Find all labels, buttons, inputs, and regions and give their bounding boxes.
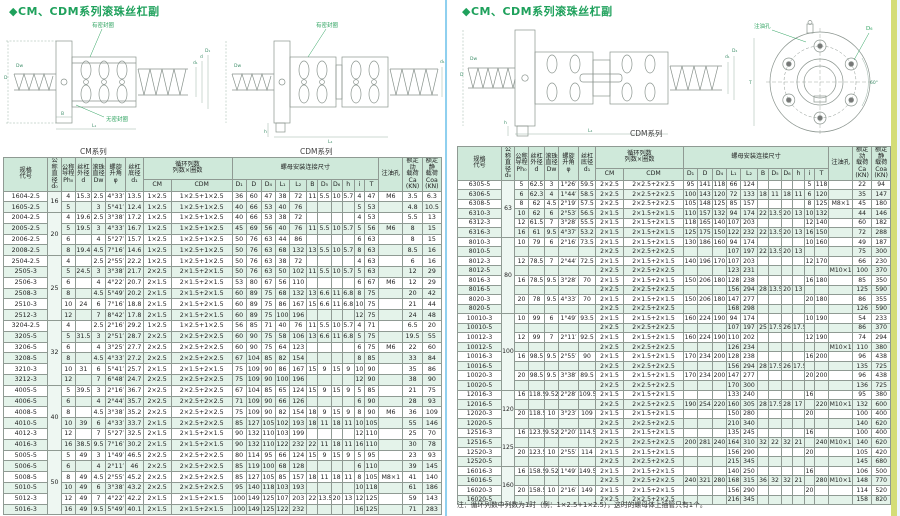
spec-value-cell: 78.5 <box>529 275 545 285</box>
spec-value-cell: 75 <box>232 364 246 375</box>
spec-value-cell: 200 <box>713 352 727 362</box>
spec-row: 4010-5103964°33′33.72×1.52×2.5+2×2.58512… <box>4 418 442 429</box>
spec-value-cell <box>815 428 829 438</box>
spec-value-cell <box>758 342 769 352</box>
spec-value-cell: 4 <box>354 256 364 267</box>
spec-value-cell <box>829 380 853 390</box>
spec-value-cell <box>75 461 91 472</box>
spec-value-cell: 53 <box>261 213 275 224</box>
dim-dw: Dw <box>234 63 241 69</box>
spec-value-cell: 15 <box>422 234 441 245</box>
spec-value-cell: 114.5 <box>579 428 596 438</box>
spec-value-cell: 4 <box>91 277 105 288</box>
spec-value-cell: 20 <box>805 409 815 419</box>
spec-value-cell <box>342 504 354 515</box>
spec-value-cell: 90 <box>261 396 275 407</box>
spec-value-cell: 135 <box>853 361 872 371</box>
spec-value-cell: 85 <box>261 385 275 396</box>
spec-value-cell: 150 <box>684 295 698 305</box>
spec-value-cell: 106 <box>290 331 307 342</box>
spec-value-cell: 95 <box>853 390 872 400</box>
spec-value-cell: 7 <box>545 333 559 343</box>
spec-value-cell: 48 <box>422 310 441 321</box>
spec-row: 8010-380107962°16′73.52×1.52×1.5+2×1.513… <box>458 237 891 247</box>
spec-value-cell: 2×1.5+2×1.5 <box>624 466 684 476</box>
spec-value-cell <box>805 342 815 352</box>
spec-value-cell: 58.5 <box>579 190 596 200</box>
spec-value-cell: 5 <box>61 385 75 396</box>
spec-value-cell <box>545 457 559 467</box>
spec-value-cell: 124 <box>290 450 307 461</box>
spec-value-cell: 32 <box>782 438 793 448</box>
spec-value-cell: 64 <box>275 342 289 353</box>
spec-value-cell: 73.5 <box>579 237 596 247</box>
spec-value-cell: 15.7 <box>126 234 143 245</box>
spec-value-cell <box>331 396 342 407</box>
spec-value-cell <box>75 407 91 418</box>
spec-value-cell: 86 <box>275 364 289 375</box>
spec-row: 12016-312016118.59.5252°28′109.52×1.52×1… <box>458 390 891 400</box>
spec-value-cell <box>805 476 815 486</box>
spec-value-cell: 18 <box>331 418 342 429</box>
spec-value-cell: 11 <box>318 418 331 429</box>
spec-value-cell: 40 <box>232 213 246 224</box>
spec-value-cell <box>815 447 829 457</box>
spec-value-cell <box>379 321 403 332</box>
spec-value-cell: 8 <box>61 353 75 364</box>
spec-code-cell: 8012-5 <box>458 266 502 276</box>
spec-value-cell <box>769 304 782 314</box>
spec-value-cell: 66 <box>727 180 741 190</box>
spec-value-cell <box>379 493 403 504</box>
spec-value-cell: 59.5 <box>579 180 596 190</box>
spec-value-cell: 20 <box>331 493 342 504</box>
spec-value-cell <box>342 353 354 364</box>
spec-value-cell <box>545 400 559 410</box>
spec-code-cell: 12516-3 <box>458 428 502 438</box>
spec-value-cell <box>793 409 805 419</box>
spec-value-cell <box>515 380 529 390</box>
spec-value-cell: 8 <box>61 245 75 256</box>
spec-value-cell: 2×2.5 <box>596 457 624 467</box>
spec-value-cell: 2°44′ <box>559 256 579 266</box>
spec-value-cell: 15 <box>331 364 342 375</box>
spec-value-cell: 9 <box>318 364 331 375</box>
spec-value-cell: 132 <box>713 209 727 219</box>
spec-value-cell: 200 <box>713 371 727 381</box>
spec-value-cell: 55 <box>403 418 422 429</box>
spec-value-cell <box>318 234 331 245</box>
spec-value-cell <box>684 304 698 314</box>
spec-value-cell <box>379 234 403 245</box>
spec-value-cell: 6 <box>61 342 75 353</box>
spec-value-cell: 125 <box>261 493 275 504</box>
spec-value-cell: 8 <box>403 234 422 245</box>
spec-value-cell: 13.5 <box>318 493 331 504</box>
spec-value-cell <box>782 180 793 190</box>
spec-value-cell <box>782 333 793 343</box>
spec-value-cell <box>559 304 579 314</box>
spec-value-cell: 53 <box>364 213 378 224</box>
spec-value-cell <box>782 352 793 362</box>
spec-value-cell <box>342 213 354 224</box>
spec-value-cell <box>579 342 596 352</box>
spec-value-cell: 66 <box>275 396 289 407</box>
spec-value-cell: 93.5 <box>579 314 596 324</box>
spec-value-cell: 24.5 <box>75 267 91 278</box>
spec-value-cell: 10 <box>515 237 529 247</box>
spec-value-cell: 11 <box>342 472 354 483</box>
spec-value-cell: 154 <box>290 407 307 418</box>
spec-value-cell: 50 <box>275 267 289 278</box>
spec-value-cell <box>307 277 318 288</box>
spec-value-cell: 33.7 <box>126 418 143 429</box>
spec-value-cell: 2×1.5 <box>596 486 624 496</box>
spec-value-cell: 232 <box>290 439 307 450</box>
spec-value-cell: 95 <box>261 450 275 461</box>
spec-value-cell: 345 <box>741 457 758 467</box>
spec-code-cell: 4006-5 <box>4 396 48 407</box>
nominal-diameter-cell: 25 <box>48 256 61 321</box>
spec-value-cell <box>829 323 853 333</box>
spec-value-cell: 2×2.5+2×2.5 <box>171 331 232 342</box>
spec-value-cell: 100 <box>232 504 246 515</box>
spec-value-cell: 17 <box>793 400 805 410</box>
spec-value-cell <box>805 495 815 505</box>
spec-value-cell: 199 <box>290 429 307 440</box>
spec-value-cell <box>331 504 342 515</box>
spec-value-cell: 2°20′ <box>559 428 579 438</box>
spec-value-cell: 186 <box>422 483 441 494</box>
spec-value-cell <box>758 218 769 228</box>
spec-code-cell: 12016-3 <box>458 390 502 400</box>
spec-value-cell <box>758 447 769 457</box>
spec-value-cell: 15 <box>307 364 318 375</box>
spec-value-cell: 9.5 <box>91 439 105 450</box>
spec-value-cell: 2×1.5+2×1.5 <box>624 428 684 438</box>
spec-value-cell: 7°16′ <box>106 245 126 256</box>
spec-value-cell: 13 <box>793 247 805 257</box>
spec-value-cell: 1×2.5+1×2.5 <box>171 191 232 202</box>
spec-value-cell: 2×1.5+2×1.5 <box>624 218 684 228</box>
spec-code-cell: 2005-2.5 <box>4 223 48 234</box>
spec-value-cell <box>515 361 529 371</box>
spec-value-cell <box>829 275 853 285</box>
spec-code-cell: 8020-3 <box>458 295 502 305</box>
spec-value-cell: 90 <box>261 375 275 386</box>
spec-value-cell <box>318 461 331 472</box>
cdm-series-drawing: 有密封圈 Dw h L₄ d₁ <box>224 17 448 145</box>
spec-value-cell: 63 <box>364 267 378 278</box>
oil-hole-label: 注油孔 <box>754 22 771 30</box>
spec-value-cell: 2×1.5+2×1.5 <box>171 288 232 299</box>
spec-value-cell: 820 <box>872 495 891 505</box>
spec-value-cell <box>793 495 805 505</box>
spec-value-cell: 16 <box>515 466 529 476</box>
spec-value-cell <box>713 361 727 371</box>
spec-value-cell <box>342 483 354 494</box>
spec-value-cell <box>559 476 579 486</box>
spec-value-cell: 232 <box>741 228 758 238</box>
spec-value-cell: 60 <box>232 310 246 321</box>
spec-value-cell <box>698 323 713 333</box>
spec-code-cell: 3204-2.5 <box>4 321 48 332</box>
spec-row: 10016-52×2.52×2.5+2×2.51562942817.52617.… <box>458 361 891 371</box>
spec-value-cell: 350 <box>872 275 891 285</box>
spec-value-cell: 2°55′ <box>106 472 126 483</box>
spec-value-cell: 90 <box>579 352 596 362</box>
cdm-screw-assembly <box>232 41 438 132</box>
spec-value-cell: 9 <box>342 385 354 396</box>
spec-value-cell: 141 <box>698 180 713 190</box>
spec-value-cell <box>769 428 782 438</box>
left-spec-table: 规格 代号公称 直径 d₀公称 导程 Ph₀丝杠 外径 d滚珠 直径 Dw螺旋 … <box>3 157 442 515</box>
spec-value-cell: 2°16′ <box>106 385 126 396</box>
dim-D: D <box>4 75 8 81</box>
spec-value-cell: 6°48′ <box>106 375 126 386</box>
spec-value-cell: 38 <box>403 375 422 386</box>
spec-value-cell: 75 <box>261 310 275 321</box>
spec-value-cell: 21 <box>403 299 422 310</box>
nominal-diameter-cell: 100 <box>502 314 515 390</box>
cdm-annotations: 有密封圈 Dw h L₄ d₁ <box>234 21 445 145</box>
spec-value-cell: 6.6 <box>318 288 331 299</box>
spec-value-cell <box>579 247 596 257</box>
spec-value-cell: 149 <box>579 486 596 496</box>
spec-value-cell: 63 <box>364 245 378 256</box>
spec-value-cell <box>529 419 545 429</box>
spec-value-cell: 238 <box>741 275 758 285</box>
spec-value-cell <box>829 447 853 457</box>
spec-value-cell: 165 <box>698 218 713 228</box>
spec-value-cell: 5°27′ <box>106 234 126 245</box>
spec-value-cell <box>713 466 727 476</box>
spec-value-cell: 62 <box>529 199 545 209</box>
spec-value-cell: 7 <box>91 429 105 440</box>
spec-value-cell: 206 <box>698 295 713 305</box>
spec-value-cell: 75 <box>261 288 275 299</box>
spec-value-cell: 2×2.5+2×2.5 <box>171 483 232 494</box>
spec-row: 5008-58494.52°55′45.22×2.52×2.5+2×2.5851… <box>4 472 442 483</box>
spec-value-cell <box>515 419 529 429</box>
spec-value-cell: 28 <box>758 361 769 371</box>
spec-value-cell: 90 <box>246 342 261 353</box>
spec-value-cell: 28 <box>758 400 769 410</box>
spec-value-cell: 2×1.5+2×1.5 <box>624 371 684 381</box>
spec-value-cell: 86 <box>290 234 307 245</box>
spec-value-cell: 95 <box>364 450 378 461</box>
spec-row: 8012-31278.572°44′72.52×1.52×1.5+2×1.514… <box>458 256 891 266</box>
spec-value-cell <box>698 409 713 419</box>
spec-value-cell: 86 <box>853 295 872 305</box>
spec-value-cell: 380 <box>872 342 891 352</box>
spec-value-cell: 46 <box>126 461 143 472</box>
spec-value-cell <box>307 310 318 321</box>
spec-value-cell <box>829 409 853 419</box>
spec-value-cell: 50 <box>232 267 246 278</box>
spec-value-cell: 8 <box>354 353 364 364</box>
spec-value-cell: 2×2.5 <box>596 419 624 429</box>
spec-value-cell: 2°28′ <box>559 390 579 400</box>
spec-value-cell <box>307 342 318 353</box>
spec-value-cell: 125 <box>364 493 378 504</box>
spec-value-cell: 4°33′ <box>106 191 126 202</box>
spec-value-cell: 5.5 <box>318 223 331 234</box>
spec-value-cell: 16 <box>805 466 815 476</box>
spec-code-cell: 2505-3 <box>4 267 48 278</box>
spec-value-cell: 315 <box>741 476 758 486</box>
spec-value-cell: 19.4 <box>75 245 91 256</box>
spec-value-cell <box>379 202 403 213</box>
spec-value-cell <box>515 438 529 448</box>
spec-value-cell: 76 <box>290 223 307 234</box>
spec-value-cell: 11 <box>793 190 805 200</box>
spec-value-cell: 75 <box>261 331 275 342</box>
spec-value-cell: 66 <box>853 256 872 266</box>
spec-value-cell <box>769 295 782 305</box>
spec-code-cell: 2510-3 <box>4 299 48 310</box>
spec-value-cell <box>579 476 596 486</box>
spec-value-cell: 200 <box>815 371 829 381</box>
spec-row: 12516-52×2.52×2.5+2×2.520028124016431032… <box>458 438 891 448</box>
spec-value-cell: 9.525 <box>545 466 559 476</box>
spec-value-cell: 2×1.5+2×1.5 <box>624 228 684 238</box>
spec-value-cell <box>379 310 403 321</box>
spec-value-cell <box>75 288 91 299</box>
spec-row: 10020-52×2.52×2.5+2×2.5170300136725 <box>458 380 891 390</box>
spec-value-cell: 14.6 <box>126 245 143 256</box>
spec-value-cell: 168 <box>727 476 741 486</box>
spec-value-cell <box>698 419 713 429</box>
spec-value-cell: 24 <box>403 310 422 321</box>
spec-value-cell <box>713 409 727 419</box>
spec-value-cell: 15 <box>307 450 318 461</box>
spec-value-cell: 125 <box>713 199 727 209</box>
spec-value-cell: 25 <box>758 323 769 333</box>
spec-row: 4012-31275°27′32.52×1.52×1.5+2×1.5901321… <box>4 429 442 440</box>
spec-value-cell: 40 <box>275 202 289 213</box>
cdm-series-caption: CDM系列 <box>300 146 332 157</box>
spec-value-cell <box>829 295 853 305</box>
spec-value-cell: 78 <box>529 295 545 305</box>
spec-value-cell: 12 <box>354 493 364 504</box>
spec-value-cell <box>307 461 318 472</box>
spec-value-cell: 2×1.5+2×1.5 <box>624 390 684 400</box>
spec-value-cell: 5°49′ <box>106 288 126 299</box>
angle-label: 60° <box>870 80 878 86</box>
spec-value-cell: 22 <box>853 180 872 190</box>
spec-value-cell: 231 <box>741 266 758 276</box>
spec-row: 10012-3129972°11′92.52×1.52×1.5+2×1.5160… <box>458 333 891 343</box>
spec-value-cell: 294 <box>741 361 758 371</box>
spec-value-cell: 143 <box>698 190 713 200</box>
spec-row: 3208-584.54°33′27.22×2.52×2.5+2×2.567104… <box>4 353 442 364</box>
spec-value-cell: 89 <box>246 310 261 321</box>
right-page: ◆CM、CDM系列滚珠丝杠副 Dw D h <box>448 0 894 516</box>
spec-value-cell: 45 <box>232 223 246 234</box>
spec-value-cell: M10×1 <box>829 400 853 410</box>
spec-row: 3212-31276°48′24.72×2.52×2.5+2×2.5751099… <box>4 375 442 386</box>
spec-code-cell: 2006-2.5 <box>4 234 48 245</box>
spec-value-cell <box>758 180 769 190</box>
spec-value-cell: 288 <box>872 228 891 238</box>
spec-value-cell: 5 <box>61 223 75 234</box>
spec-value-cell <box>769 466 782 476</box>
spec-value-cell: 89 <box>246 299 261 310</box>
spec-value-cell <box>331 202 342 213</box>
spec-value-cell: 71 <box>261 321 275 332</box>
spec-value-cell: 44 <box>422 299 441 310</box>
spec-value-cell: 99 <box>529 314 545 324</box>
spec-value-cell <box>559 419 579 429</box>
spec-value-cell: 53.2 <box>579 228 596 238</box>
spec-value-cell <box>713 380 727 390</box>
spec-value-cell <box>793 218 805 228</box>
spec-value-cell: 18.8 <box>126 299 143 310</box>
spec-value-cell: 110 <box>261 439 275 450</box>
spec-value-cell: 70 <box>422 429 441 440</box>
spec-value-cell: 105 <box>364 472 378 483</box>
spec-row: 2004-2.520419.62.53°38′17.21×2.51×2.5+1×… <box>4 213 442 224</box>
spec-code-cell: 3208-5 <box>4 353 48 364</box>
spec-value-cell: 70 <box>579 275 596 285</box>
spec-value-cell: 110 <box>684 209 698 219</box>
nominal-diameter-cell: 16 <box>48 191 61 213</box>
spec-value-cell: 5 <box>61 450 75 461</box>
spec-value-cell: 283 <box>422 504 441 515</box>
spec-value-cell: 1°49′ <box>559 314 579 324</box>
spec-value-cell: M6 <box>379 407 403 418</box>
spec-value-cell: 4.5 <box>91 245 105 256</box>
spec-value-cell: 2×2.5 <box>596 361 624 371</box>
spec-value-cell: 203 <box>741 218 758 228</box>
spec-value-cell: 2×2.5 <box>143 407 171 418</box>
spec-value-cell: 277 <box>741 371 758 381</box>
spec-value-cell: 132 <box>853 400 872 410</box>
spec-value-cell: 75 <box>853 247 872 257</box>
spec-value-cell <box>805 304 815 314</box>
spec-value-cell: 20 <box>515 295 529 305</box>
spec-value-cell: 2°53′ <box>559 209 579 219</box>
spec-row: 3204-2.53242.52°16′29.21×2.51×2.5+1×2.55… <box>4 321 442 332</box>
spec-value-cell <box>805 400 815 410</box>
spec-value-cell: 20 <box>782 247 793 257</box>
spec-value-cell <box>379 385 403 396</box>
left-diagrams: 有密封圈 无密封圈 Dw D B L₁ d₁ d D₁ <box>4 17 448 145</box>
spec-value-cell: 2×1.5+2×1.5 <box>624 409 684 419</box>
spec-value-cell: 156 <box>727 361 741 371</box>
spec-code-cell: 5008-5 <box>4 472 48 483</box>
spec-row: 2508-384.55°49′20.22×1.52×1.5+2×1.560897… <box>4 288 442 299</box>
spec-value-cell: 24 <box>75 299 91 310</box>
spec-value-cell: 174 <box>741 237 758 247</box>
spec-value-cell: 120 <box>815 190 829 200</box>
spec-value-cell: 174 <box>741 209 758 219</box>
spec-row: 2504-2.52542.52°55′22.21×2.51×2.5+1×2.55… <box>4 256 442 267</box>
spec-value-cell: 75 <box>261 342 275 353</box>
spec-value-cell: 143 <box>422 493 441 504</box>
spec-code-cell: 2004-2.5 <box>4 213 48 224</box>
spec-value-cell: 100 <box>261 461 275 472</box>
spec-value-cell: 200 <box>684 438 698 448</box>
spec-value-cell: 500 <box>872 466 891 476</box>
spec-value-cell: 82 <box>275 353 289 364</box>
spec-value-cell: 2×2.5 <box>596 304 624 314</box>
spec-code-cell: 12520-3 <box>458 447 502 457</box>
spec-value-cell: 9.5 <box>545 295 559 305</box>
spec-value-cell: 42 <box>422 288 441 299</box>
spec-value-cell: 140 <box>246 483 261 494</box>
